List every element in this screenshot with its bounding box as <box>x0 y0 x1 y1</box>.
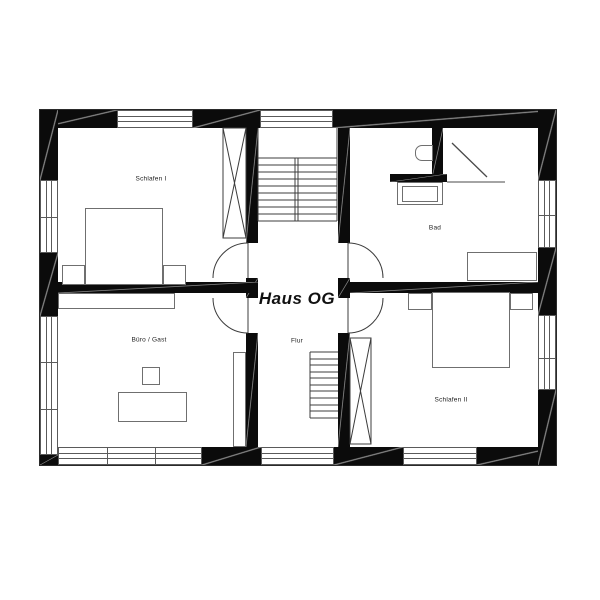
stairs-lower <box>310 352 338 418</box>
floor-title: Haus OG <box>259 289 335 309</box>
room-label-flur: Flur <box>291 338 303 345</box>
door-schlafen1 <box>213 243 248 278</box>
room-label-schlafen1: Schlafen I <box>136 176 167 183</box>
door-buero <box>213 298 248 333</box>
room-label-buero: Büro / Gast <box>131 337 166 344</box>
floor-plan: Schlafen I Bad Büro / Gast Flur Schlafen… <box>0 0 600 600</box>
room-label-bad: Bad <box>429 225 441 232</box>
shaft-x-box-upper <box>223 128 246 238</box>
room-label-schlafen2: Schlafen II <box>435 397 468 404</box>
stairs-upper <box>258 128 337 221</box>
door-bad <box>348 243 383 278</box>
shower-bad <box>447 143 505 182</box>
door-schlafen2 <box>348 298 383 333</box>
wardrobe-x-box-schlafen2 <box>350 338 371 444</box>
